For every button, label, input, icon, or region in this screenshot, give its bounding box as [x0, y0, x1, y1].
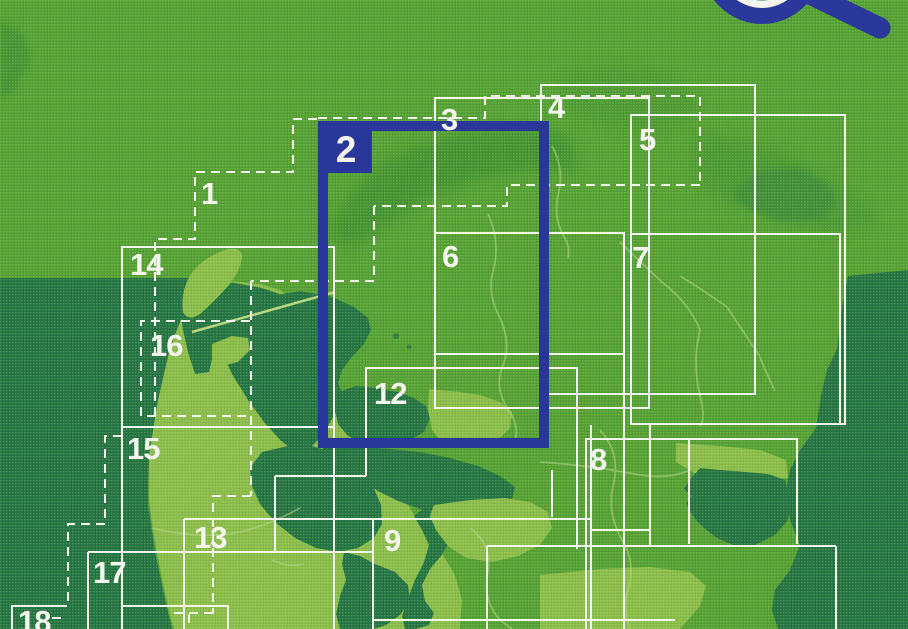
- svg-text:1: 1: [201, 176, 218, 211]
- svg-text:8: 8: [590, 442, 607, 477]
- svg-text:16: 16: [150, 328, 183, 363]
- svg-text:7: 7: [632, 240, 648, 275]
- svg-text:14: 14: [130, 247, 164, 282]
- svg-text:15: 15: [127, 431, 160, 466]
- svg-text:5: 5: [639, 122, 656, 157]
- svg-text:2: 2: [336, 129, 357, 170]
- svg-text:6: 6: [442, 239, 459, 274]
- svg-text:17: 17: [93, 555, 125, 590]
- svg-text:4: 4: [548, 90, 566, 125]
- svg-text:12: 12: [374, 376, 406, 411]
- svg-text:18: 18: [18, 604, 51, 629]
- svg-text:3: 3: [441, 102, 458, 137]
- svg-text:9: 9: [384, 523, 401, 558]
- svg-text:13: 13: [194, 520, 227, 555]
